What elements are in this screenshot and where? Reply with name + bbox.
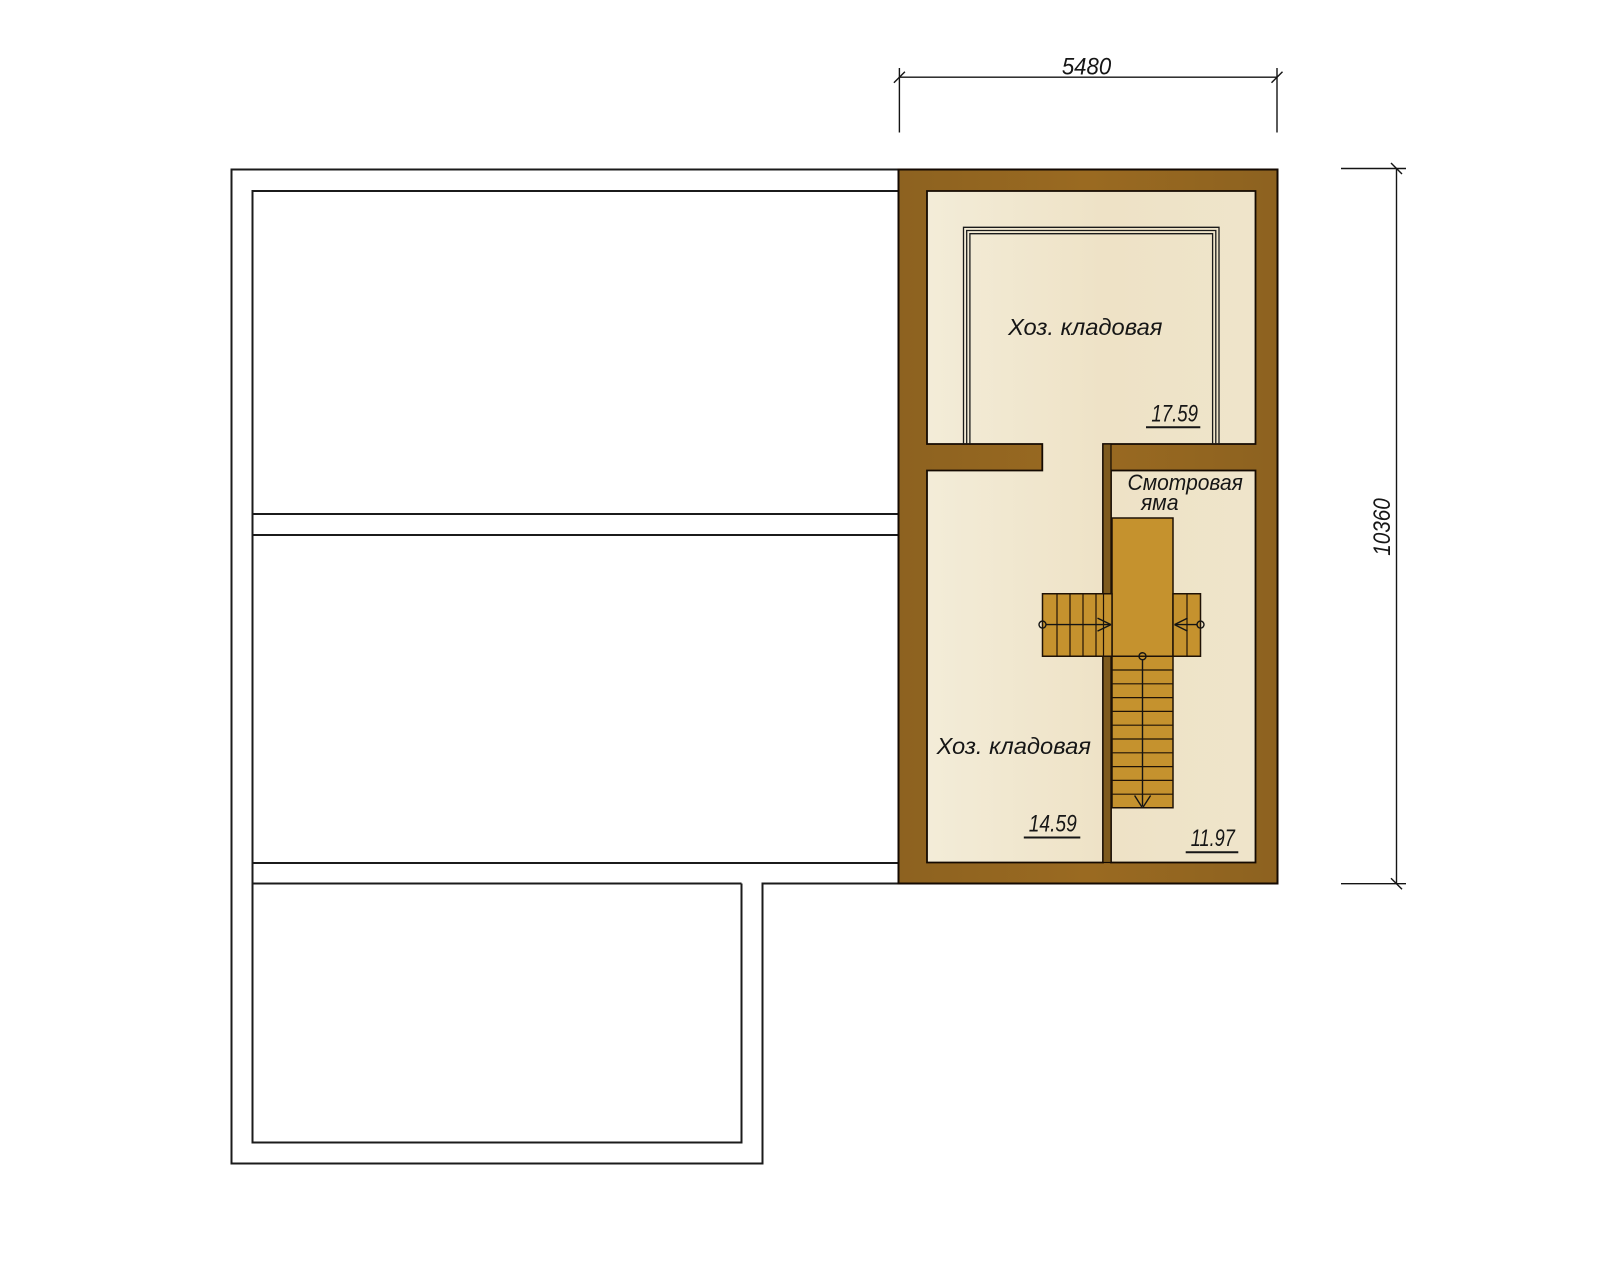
svg-text:10360: 10360 <box>1369 498 1396 556</box>
svg-text:14.59: 14.59 <box>1029 809 1077 837</box>
svg-text:11.97: 11.97 <box>1191 825 1236 852</box>
svg-text:5480: 5480 <box>1062 53 1112 80</box>
svg-text:Хоз. кладовая: Хоз. кладовая <box>1007 315 1163 341</box>
svg-text:яма: яма <box>1140 489 1179 515</box>
svg-text:Хоз. кладовая: Хоз. кладовая <box>936 734 1092 760</box>
svg-text:17.59: 17.59 <box>1151 400 1198 427</box>
